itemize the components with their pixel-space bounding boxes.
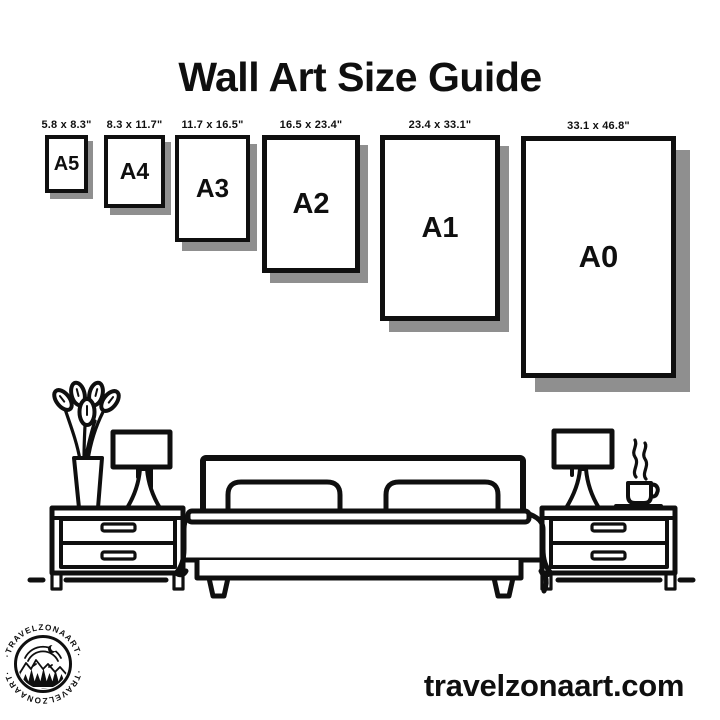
brand-arc-top-text: ·TRAVELZONAART· — [3, 623, 84, 658]
bed-foot-icon — [494, 578, 513, 596]
website-url: travelzonaart.com — [398, 668, 710, 704]
coffee-cup-icon — [616, 440, 661, 506]
pillow-left-icon — [228, 482, 340, 513]
pillow-right-icon — [386, 482, 498, 513]
nightstand-right-icon — [542, 508, 675, 589]
nightstand-left-icon — [52, 508, 183, 589]
brand-logo: ·TRAVELZONAART· ·TRAVELZONAART· — [0, 616, 96, 712]
rainbow-arc-icon — [28, 651, 58, 661]
bed-icon — [176, 458, 551, 596]
bed-foot-icon — [209, 578, 228, 596]
mattress-icon — [188, 511, 529, 522]
steam-icon — [634, 440, 637, 477]
logo-landscape — [14, 645, 72, 693]
table-lamp-right-icon — [554, 431, 612, 508]
bedroom-scene-illustration — [0, 0, 720, 720]
steam-icon — [644, 443, 647, 479]
table-lamp-left-icon — [113, 432, 170, 508]
